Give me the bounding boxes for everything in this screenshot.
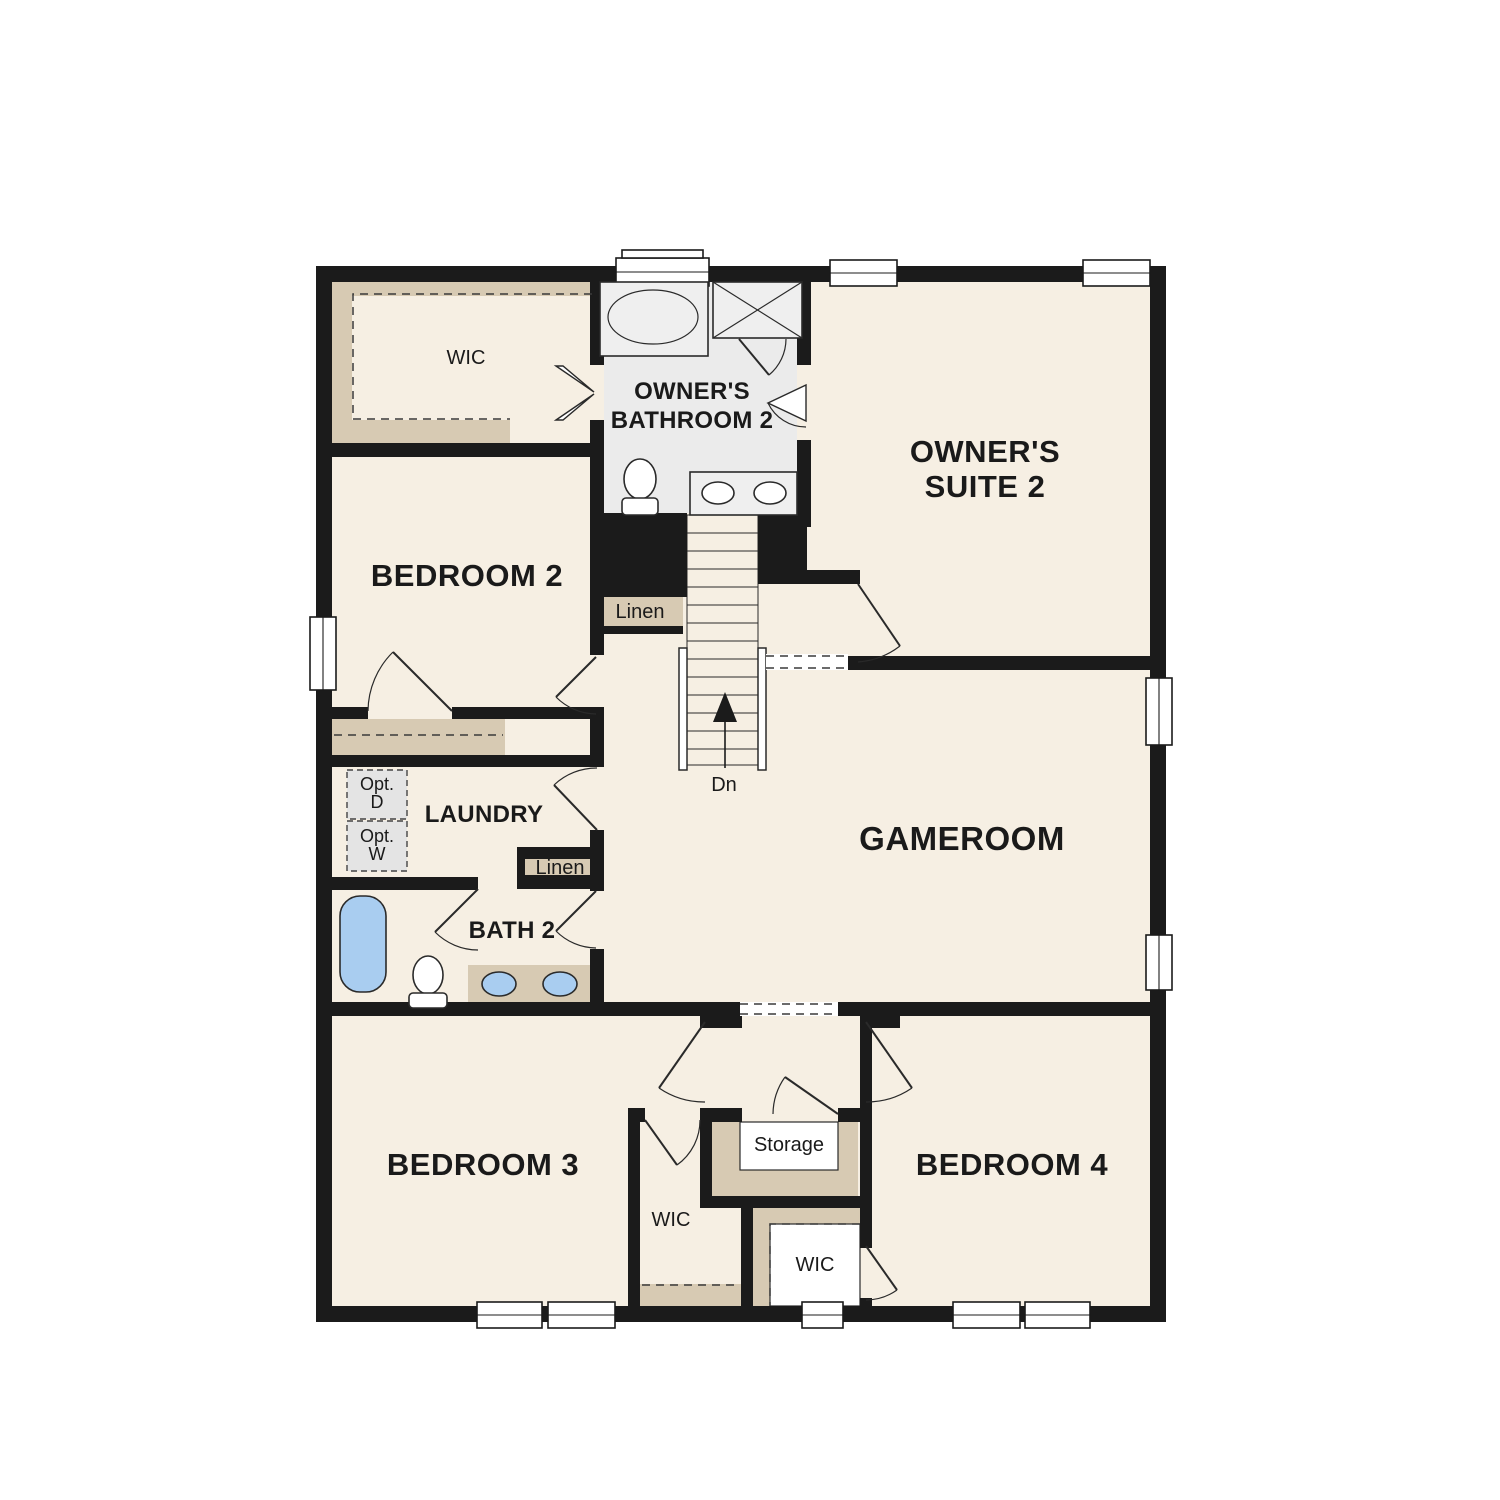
label-bedroom2: BEDROOM 2 [371,558,563,593]
label-opt-w-line2: W [369,844,386,864]
label-opt-d-line1: Opt. [360,774,394,794]
window [477,1302,542,1328]
double-vanity [690,472,797,515]
sink-icon [482,972,516,996]
window [1025,1302,1090,1328]
window [1146,678,1172,745]
bathtub-platform [600,282,708,356]
wic-bedroom3-shelf [640,1284,741,1306]
label-opt-w-line1: Opt. [360,826,394,846]
label-bedroom4: BEDROOM 4 [916,1147,1109,1182]
window [310,617,336,690]
label-owners-bathroom-line1: OWNER'S [634,378,750,405]
sink-icon [702,482,734,504]
label-gameroom: GAMEROOM [859,820,1065,857]
label-wic-bedroom4: WIC [796,1254,835,1276]
window [953,1302,1020,1328]
label-opt-d-line2: D [371,792,384,812]
label-storage: Storage [754,1134,824,1156]
staircase [679,515,766,770]
window [616,250,709,286]
window [802,1302,843,1328]
label-stairs-dn: Dn [711,774,737,796]
shower-icon [713,282,802,338]
label-linen-stairs: Linen [616,601,665,623]
label-laundry: LAUNDRY [425,801,544,828]
label-bath2: BATH 2 [469,917,556,944]
floor-plan-drawing: WIC OWNER'S BATHROOM 2 OWNER'S SUITE 2 B… [0,0,1500,1500]
floor-plan-page: WIC OWNER'S BATHROOM 2 OWNER'S SUITE 2 B… [0,0,1500,1500]
sink-icon [754,482,786,504]
label-owners-bathroom-line2: BATHROOM 2 [611,407,774,434]
bedroom2-closet-shelf [332,719,505,755]
sink-icon [543,972,577,996]
label-bedroom3: BEDROOM 3 [387,1147,579,1182]
window [548,1302,615,1328]
window [1146,935,1172,990]
label-owners-suite-line2: SUITE 2 [925,469,1046,504]
label-owners-suite-line1: OWNER'S [910,434,1060,469]
label-wic-owners: WIC [447,347,486,369]
toilet-icon [622,459,658,515]
label-linen-bath: Linen [536,857,585,879]
window [1083,260,1150,286]
stair-rail-right [758,648,766,770]
window [830,260,897,286]
bathtub-icon [340,896,386,992]
stair-rail-left [679,648,687,770]
label-wic-bedroom3: WIC [652,1209,691,1231]
